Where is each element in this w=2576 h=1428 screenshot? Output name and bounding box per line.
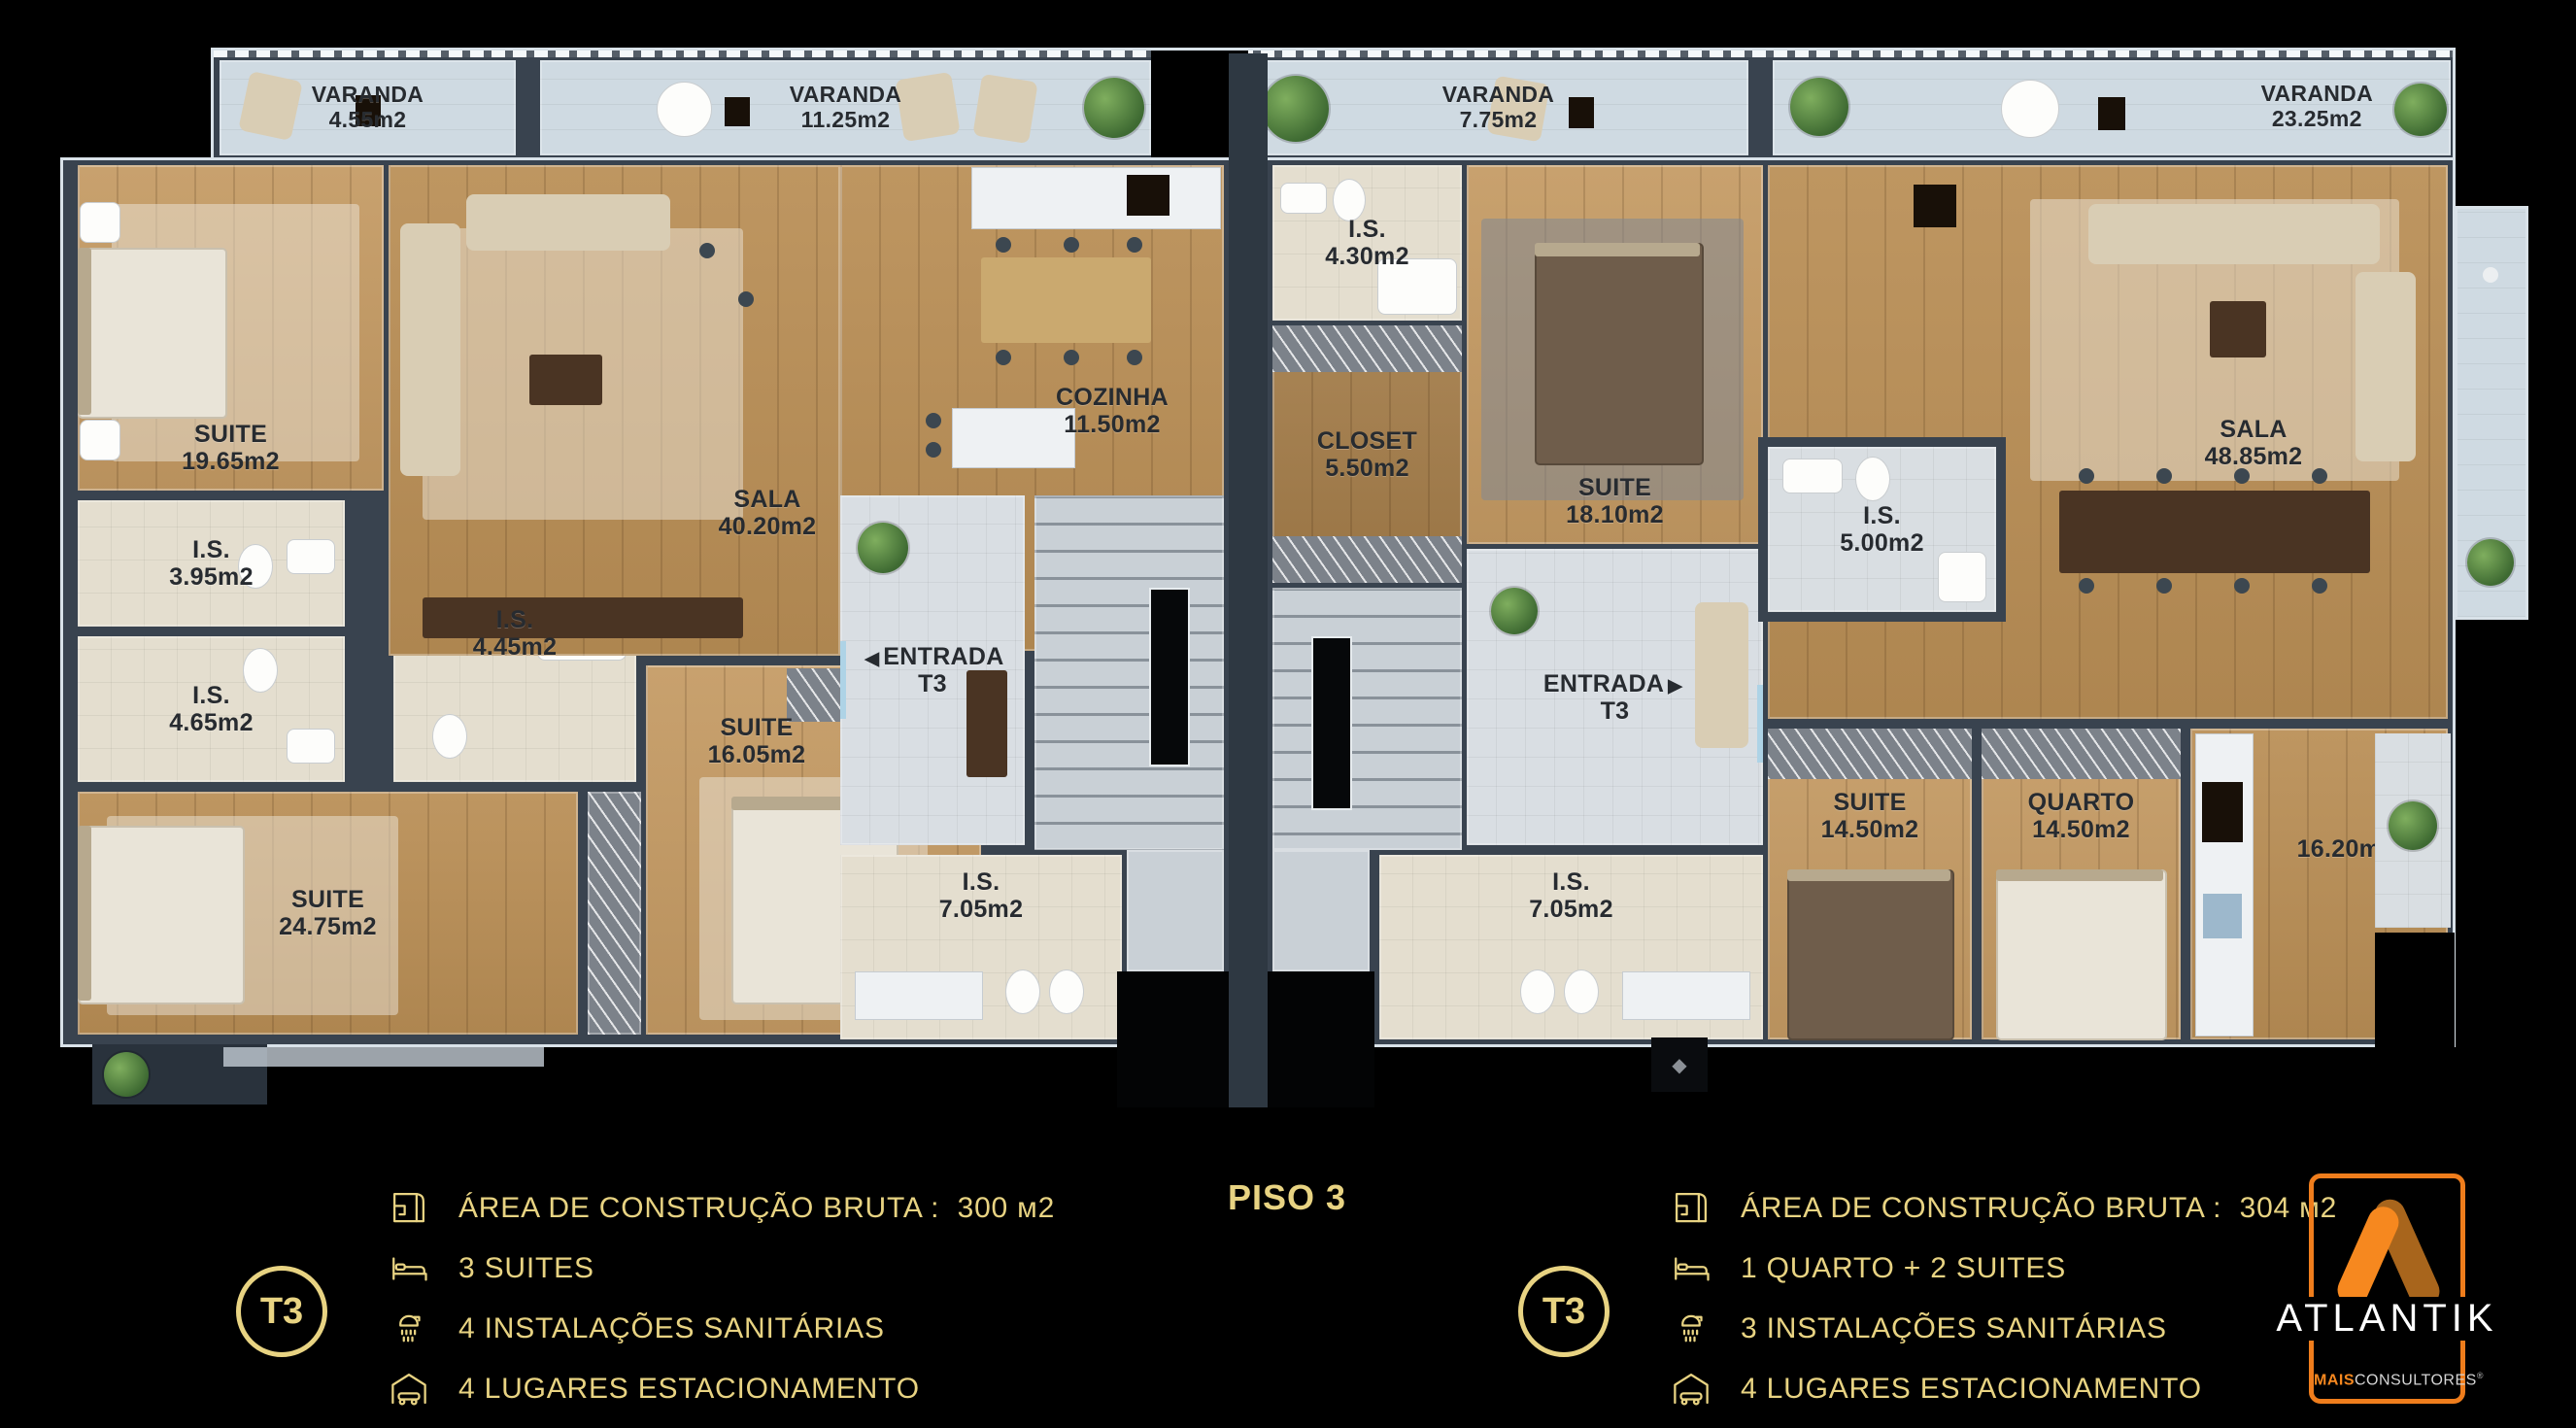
elevator-shaft-left [1117, 971, 1229, 1107]
sofa-shape [400, 223, 460, 476]
balcony-strip: VARANDA 4.55m2 VARANDA 11.25m2 VARANDA 7… [214, 51, 2453, 160]
room-is-7-05-left: I.S. 7.05m2 [840, 855, 1122, 1039]
room-name-line: ◀ENTRADA [861, 643, 1003, 670]
room-name: SUITE [1833, 789, 1906, 816]
room-name: VARANDA [790, 83, 901, 108]
room-varanda-4: VARANDA 23.25m2 [1773, 60, 2451, 155]
room-name: I.S. [1552, 868, 1590, 896]
dining-chair-shape [2156, 578, 2172, 594]
bed-shape [78, 826, 245, 1004]
closet-shape [1768, 729, 1972, 779]
room-area: 11.50m2 [1064, 411, 1160, 438]
toilet-shape [243, 648, 278, 693]
legend-text: 3 SUITES [458, 1254, 594, 1283]
legend-row: 3 SUITES [387, 1249, 1055, 1288]
legend-text: 4 INSTALAÇÕES SANITÁRIAS [458, 1314, 885, 1343]
dining-chair-shape [996, 350, 1011, 365]
sofa-shape [2088, 204, 2380, 264]
shower-icon [1669, 1309, 1713, 1349]
closet-shape [1982, 729, 2181, 779]
hanging-chair-shape [2001, 80, 2059, 138]
kitchen-terrace [2375, 733, 2451, 928]
legend-text: 4 LUGARES ESTACIONAMENTO [1741, 1375, 2202, 1404]
side-terrace [2457, 209, 2525, 617]
room-area: T3 [918, 670, 947, 697]
room-varanda-3: VARANDA 7.75m2 [1248, 60, 1748, 155]
room-name-line: ENTRADA▶ [1543, 670, 1686, 697]
room-closet: CLOSET 5.50m2 [1272, 325, 1462, 583]
plant [2467, 539, 2514, 586]
headboard-shape [1535, 243, 1700, 256]
legend-row: 4 LUGARES ESTACIONAMENTO [1669, 1370, 2337, 1409]
stair-landing-right [1272, 850, 1370, 971]
dining-chair-shape [2079, 578, 2094, 594]
room-area: 16.05m2 [708, 741, 806, 768]
lounger-shape [972, 74, 1037, 144]
room-area: 5.50m2 [1325, 455, 1409, 482]
plant [1263, 76, 1329, 142]
car-garage-icon [387, 1369, 431, 1410]
bidet-shape [1520, 969, 1555, 1014]
room-label: VARANDA 11.25m2 [540, 60, 1151, 155]
type-badge-left: T3 [236, 1266, 327, 1357]
type-badge-label: T3 [260, 1291, 303, 1333]
room-sala-40: SALA 40.20m2 [389, 165, 840, 656]
cube-marker: ◆ [1651, 1037, 1708, 1092]
door-sill [1757, 685, 1763, 763]
dining-table-shape [981, 257, 1151, 343]
toilet-shape [432, 714, 467, 759]
nightstand-shape [80, 202, 120, 243]
room-is-7-05-right: I.S. 7.05m2 [1379, 855, 1763, 1039]
hanging-chair-shape [657, 82, 712, 137]
staircase-left [1034, 495, 1224, 850]
balcony-railing [214, 51, 2453, 57]
dining-chair-shape [1127, 350, 1142, 365]
entry-arrow-icon: ▶ [1668, 676, 1682, 697]
plant [1491, 588, 1538, 634]
bed-icon [1669, 1248, 1713, 1289]
type-badge-right: T3 [1518, 1266, 1610, 1357]
cooktop-shape [2202, 782, 2243, 842]
room-entrada-right: ENTRADA▶ T3 [1467, 549, 1763, 845]
legend-row: 3 INSTALAÇÕES SANITÁRIAS [1669, 1309, 2337, 1348]
terrace-chair-shape [2483, 267, 2498, 283]
dining-chair-shape [2312, 468, 2327, 484]
room-varanda-1: VARANDA 4.55m2 [220, 60, 516, 155]
lounger-shape [1486, 76, 1550, 143]
kitchen-island-shape [952, 408, 1075, 468]
plant [2394, 84, 2447, 136]
room-area: 18.10m2 [1566, 501, 1664, 528]
room-is-5-00: I.S. 5.00m2 [1768, 447, 1996, 612]
sink-shape [287, 539, 335, 574]
room-name: SUITE [720, 714, 793, 741]
room-name: QUARTO [2028, 789, 2135, 816]
room-name: CLOSET [1317, 427, 1417, 455]
door-sill [840, 641, 846, 719]
party-wall [1229, 53, 1268, 1107]
stairwell-void [1149, 588, 1190, 766]
console-table-shape [966, 670, 1007, 777]
lounger-shape [238, 71, 303, 141]
sofa-shape [2356, 272, 2416, 461]
side-table-shape [1569, 97, 1594, 128]
bed-icon [387, 1248, 431, 1289]
entry-arrow-icon: ◀ [864, 649, 879, 669]
staircase-right [1272, 588, 1462, 850]
bed-shape [1787, 869, 1954, 1040]
room-suite-19: SUITE 19.65m2 [78, 165, 384, 491]
cooktop-shape [1127, 175, 1169, 216]
room-label: QUARTO 14.50m2 [1982, 789, 2181, 843]
dining-chair-shape [2234, 468, 2250, 484]
atlantik-logo: ATLANTIK MAISCONSULTORES® [2309, 1173, 2465, 1404]
armchair-shape [699, 243, 715, 258]
headboard-shape [1996, 869, 2163, 881]
bed-shape [78, 248, 227, 419]
legend-row: 1 QUARTO + 2 SUITES [1669, 1249, 2337, 1288]
dining-chair-shape [996, 237, 1011, 253]
type-badge-label: T3 [1542, 1291, 1585, 1333]
room-name: ENTRADA [1543, 670, 1664, 697]
sink-shape [1782, 459, 1843, 493]
room-quarto: QUARTO 14.50m2 [1982, 729, 2181, 1039]
room-name: SALA [733, 486, 800, 513]
room-area: T3 [1601, 697, 1630, 725]
room-is-4-30: I.S. 4.30m2 [1272, 165, 1462, 321]
kitchen-counter-shape [2195, 733, 2254, 1037]
room-name: I.S. [963, 868, 1000, 896]
nightstand-shape [80, 420, 120, 460]
toilet-shape [1333, 179, 1366, 221]
sink-shape [287, 729, 335, 764]
room-is-4-65: I.S. 4.65m2 [78, 636, 345, 782]
elevator-shaft-right [1268, 971, 1374, 1107]
sub-brand-bold: MAIS [2314, 1372, 2355, 1388]
side-table-shape [356, 95, 381, 126]
toilet-shape [1855, 457, 1890, 501]
plan-notch [2375, 933, 2455, 1047]
floor-plan-poster: VARANDA 4.55m2 VARANDA 11.25m2 VARANDA 7… [0, 0, 2576, 1428]
room-label: VARANDA 23.25m2 [2261, 82, 2373, 132]
room-label: SUITE 16.05m2 [660, 714, 854, 768]
dining-chair-shape [2156, 468, 2172, 484]
room-name: ENTRADA [883, 643, 1003, 670]
dining-table-shape [2059, 491, 2370, 573]
armchair-shape [738, 291, 754, 307]
side-table-shape [725, 97, 750, 126]
legend-text: ÁREA DE CONSTRUÇÃO BRUTA : 300 м2 [458, 1194, 1055, 1223]
room-area: 7.05m2 [939, 896, 1024, 923]
legend-text: ÁREA DE CONSTRUÇÃO BRUTA : 304 м2 [1741, 1194, 2337, 1223]
headboard-shape [78, 248, 91, 415]
toilet-shape [1005, 969, 1040, 1014]
sink-shape [2203, 894, 2242, 938]
dining-chair-shape [2079, 468, 2094, 484]
room-area: 23.25m2 [2272, 107, 2362, 132]
headboard-shape [78, 826, 91, 1001]
room-suite-24: SUITE 24.75m2 [78, 792, 578, 1035]
vanity-shape [1622, 971, 1750, 1020]
dining-chair-shape [2312, 578, 2327, 594]
blueprint-icon [1669, 1188, 1713, 1229]
bed-shape [1535, 243, 1704, 465]
tv-cabinet-shape [1914, 185, 1956, 227]
stool-shape [926, 413, 941, 428]
bed-shape [1996, 869, 2167, 1040]
room-area: 14.50m2 [1821, 816, 1919, 843]
plant [1084, 78, 1144, 138]
closet-shape [1272, 325, 1462, 372]
legend-text: 1 QUARTO + 2 SUITES [1741, 1254, 2066, 1283]
plant [1790, 78, 1848, 136]
kitchen-counter-shape [971, 167, 1221, 229]
sink-shape [1280, 183, 1327, 214]
room-sala-48: SALA 48.85m2 [1768, 165, 2448, 719]
dining-chair-shape [1127, 237, 1142, 253]
plant [858, 523, 908, 573]
toilet-shape [238, 544, 273, 589]
sideboard-shape [423, 597, 743, 638]
legend-left: ÁREA DE CONSTRUÇÃO BRUTA : 300 м2 3 SUIT… [387, 1189, 1055, 1409]
coffee-table-shape [2210, 301, 2266, 357]
toilet-shape [1564, 969, 1599, 1014]
room-name: I.S. [192, 682, 230, 709]
atlantik-chevron-icon [2337, 1190, 2438, 1309]
bathtub-shape [1377, 258, 1457, 315]
car-garage-icon [1669, 1369, 1713, 1410]
room-suite-18: SUITE 18.10m2 [1467, 165, 1763, 544]
room-name: COZINHA [1056, 384, 1169, 411]
floor-title: PISO 3 [1151, 1177, 1423, 1218]
lounger-shape [895, 72, 960, 142]
legend-text: 3 INSTALAÇÕES SANITÁRIAS [1741, 1314, 2167, 1343]
room-area: 14.50m2 [2032, 816, 2130, 843]
room-area: 4.65m2 [169, 709, 254, 736]
dining-chair-shape [1064, 237, 1079, 253]
room-name: I.S. [192, 536, 230, 563]
legend-row: 4 INSTALAÇÕES SANITÁRIAS [387, 1309, 1055, 1348]
brand-name: ATLANTIK [2268, 1297, 2505, 1341]
room-area: 7.05m2 [1529, 896, 1613, 923]
room-area: 5.00m2 [1840, 529, 1924, 557]
stool-shape [926, 442, 941, 458]
sub-brand: MAISCONSULTORES® [2314, 1371, 2460, 1389]
room-varanda-2: VARANDA 11.25m2 [540, 60, 1151, 155]
closet-shape [1272, 536, 1462, 583]
plant [104, 1052, 149, 1097]
headboard-shape [1787, 869, 1950, 881]
bench-shape [1695, 602, 1748, 748]
plant [2389, 801, 2437, 850]
legend-row: ÁREA DE CONSTRUÇÃO BRUTA : 300 м2 [387, 1189, 1055, 1228]
room-area: 11.25m2 [801, 108, 891, 133]
registered-mark: ® [2477, 1371, 2484, 1380]
stairwell-void [1311, 636, 1352, 810]
legend-right: ÁREA DE CONSTRUÇÃO BRUTA : 304 м2 1 QUAR… [1669, 1189, 2337, 1409]
side-table-shape [2098, 97, 2125, 130]
room-suite-14: SUITE 14.50m2 [1768, 729, 1972, 1039]
dining-chair-shape [2234, 578, 2250, 594]
dining-chair-shape [1064, 350, 1079, 365]
room-entrada-left: ◀ENTRADA T3 [840, 495, 1025, 845]
room-name: I.S. [1863, 502, 1901, 529]
wardrobe-corridor [588, 792, 641, 1035]
room-name: VARANDA [2261, 82, 2373, 107]
room-label: SUITE 14.50m2 [1768, 789, 1972, 843]
window-ledge [223, 1047, 544, 1067]
sub-brand-rest: CONSULTORES [2355, 1372, 2477, 1388]
shower-tray-shape [1938, 552, 1986, 602]
legend-text: 4 LUGARES ESTACIONAMENTO [458, 1375, 920, 1404]
stair-landing-left [1127, 850, 1224, 971]
room-is-3-95: I.S. 3.95m2 [78, 500, 345, 627]
legend-row: ÁREA DE CONSTRUÇÃO BRUTA : 304 м2 [1669, 1189, 2337, 1228]
blueprint-icon [387, 1188, 431, 1229]
coffee-table-shape [529, 355, 602, 405]
sofa-shape [466, 194, 670, 251]
shower-icon [387, 1309, 431, 1349]
bidet-shape [1049, 969, 1084, 1014]
legend-row: 4 LUGARES ESTACIONAMENTO [387, 1370, 1055, 1409]
vanity-shape [855, 971, 983, 1020]
